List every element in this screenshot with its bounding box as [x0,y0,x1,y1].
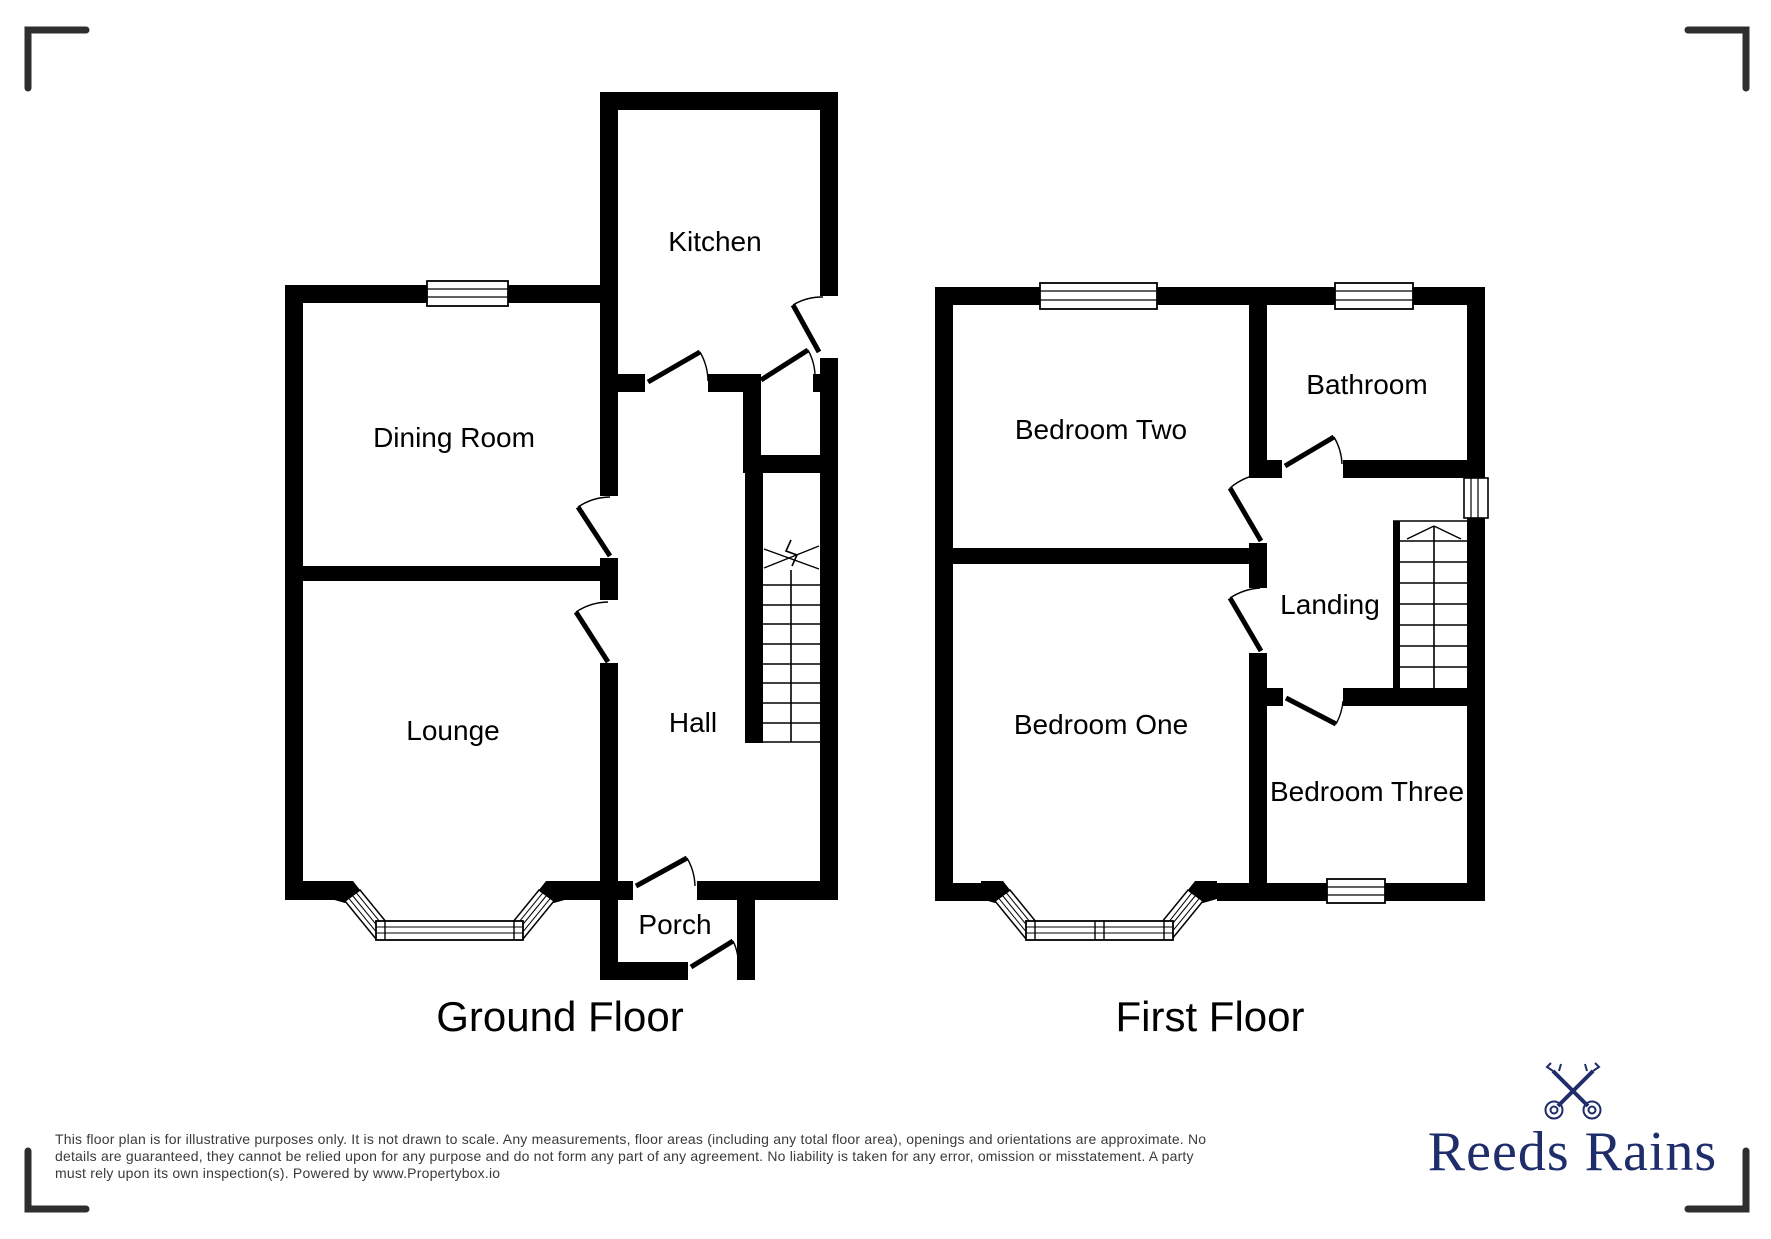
bathroom-window [1335,283,1413,309]
ground-floor-plan: Kitchen Dining Room Lounge Hall Porch Gr… [285,92,838,1040]
bedroom-two-window [1040,283,1157,309]
kitchen-label: Kitchen [668,226,761,257]
dining-room-label: Dining Room [373,422,535,453]
disclaimer: This floor plan is for illustrative purp… [55,1131,1206,1182]
first-floor-plan: Bedroom Two Bathroom Bedroom One Landing… [935,283,1488,1040]
bathroom-door [1285,437,1342,466]
first-floor-title: First Floor [1116,993,1305,1040]
bedroom-one-door [1230,588,1261,651]
bedroom-three-window [1327,879,1385,903]
hall-label: Hall [669,707,717,738]
bedroom-one-label: Bedroom One [1014,709,1188,740]
porch-hall-door [636,858,695,886]
kitchen-hall-door [648,352,708,382]
first-floor-doors [1230,437,1343,724]
bedroom-two-label: Bedroom Two [1015,414,1187,445]
landing-label: Landing [1280,589,1380,620]
bedroom-three-label: Bedroom Three [1270,776,1464,807]
floorplan-drawing: Kitchen Dining Room Lounge Hall Porch Gr… [0,0,1771,1239]
stairs-side-window [1464,478,1488,518]
brand-name: Reeds Rains [1400,1124,1745,1180]
lounge-door [576,602,608,662]
back-door [793,297,823,352]
crop-mark-top-right [1688,30,1746,88]
disclaimer-line: details are guaranteed, they cannot be r… [55,1148,1206,1165]
bathroom-label: Bathroom [1306,369,1427,400]
crossed-keys-icon [1541,1062,1605,1122]
disclaimer-line: This floor plan is for illustrative purp… [55,1131,1206,1148]
bedroom-three-door [1286,698,1343,724]
kitchen-store-door [761,350,815,380]
disclaimer-line: must rely upon its own inspection(s). Po… [55,1165,1206,1182]
crop-mark-top-left [28,30,86,88]
lounge-label: Lounge [406,715,499,746]
bedroom-two-door [1230,474,1261,541]
ground-floor-title: Ground Floor [436,993,683,1040]
porch-label: Porch [638,909,711,940]
brand-logo: Reeds Rains [1400,1062,1745,1180]
ground-floor-stairs [763,540,820,742]
dining-room-window [427,281,508,306]
bedroom-one-bay-window [981,881,1217,940]
floorplan-page: Kitchen Dining Room Lounge Hall Porch Gr… [0,0,1771,1239]
porch-entry-door [691,941,738,967]
first-floor-stairs [1393,521,1467,688]
lounge-bay-window [331,881,568,940]
dining-room-door [578,497,610,556]
